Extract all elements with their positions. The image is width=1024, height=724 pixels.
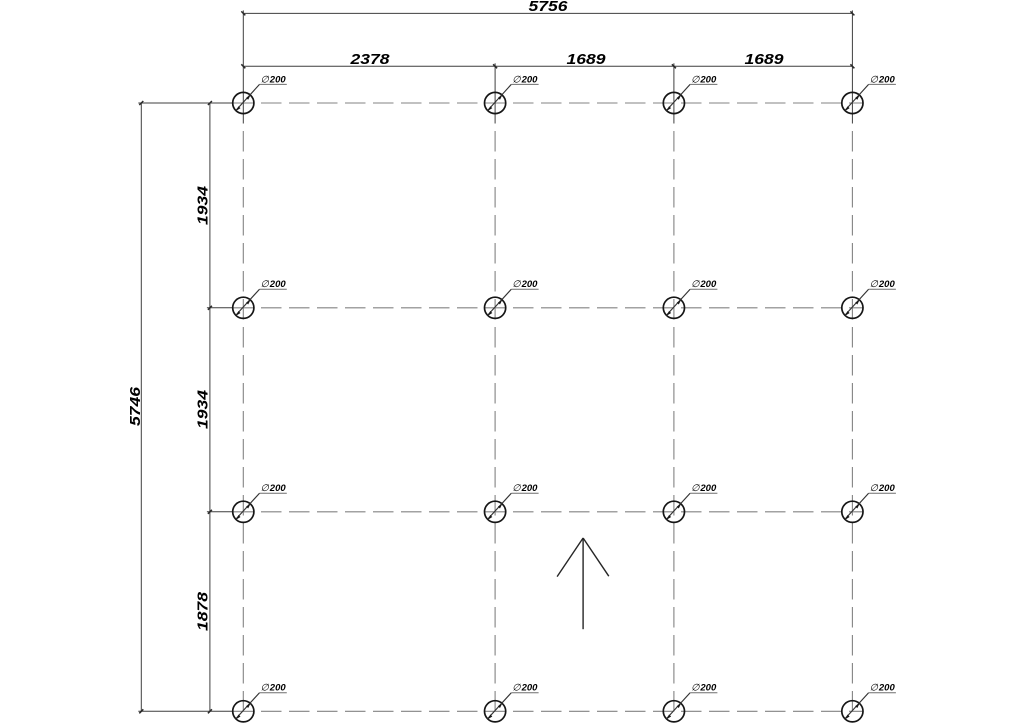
svg-text:5756: 5756 — [529, 0, 569, 15]
svg-text:1934: 1934 — [195, 186, 211, 225]
svg-text:1878: 1878 — [195, 591, 211, 631]
svg-text:1689: 1689 — [567, 52, 606, 68]
svg-text:∅200: ∅200 — [261, 683, 287, 694]
svg-text:∅200: ∅200 — [512, 74, 538, 85]
svg-text:∅200: ∅200 — [512, 483, 538, 494]
svg-text:∅200: ∅200 — [870, 683, 896, 694]
svg-text:∅200: ∅200 — [261, 74, 287, 85]
svg-text:∅200: ∅200 — [261, 483, 287, 494]
svg-text:∅200: ∅200 — [870, 74, 896, 85]
svg-text:∅200: ∅200 — [512, 279, 538, 290]
svg-text:1934: 1934 — [195, 390, 211, 429]
svg-text:∅200: ∅200 — [691, 279, 717, 290]
svg-text:∅200: ∅200 — [870, 279, 896, 290]
svg-text:2378: 2378 — [349, 52, 390, 68]
svg-text:∅200: ∅200 — [691, 74, 717, 85]
svg-text:5746: 5746 — [128, 386, 144, 426]
svg-text:∅200: ∅200 — [261, 279, 287, 290]
svg-text:∅200: ∅200 — [870, 483, 896, 494]
svg-text:∅200: ∅200 — [512, 683, 538, 694]
svg-text:∅200: ∅200 — [691, 483, 717, 494]
svg-text:∅200: ∅200 — [691, 683, 717, 694]
svg-text:1689: 1689 — [745, 52, 784, 68]
